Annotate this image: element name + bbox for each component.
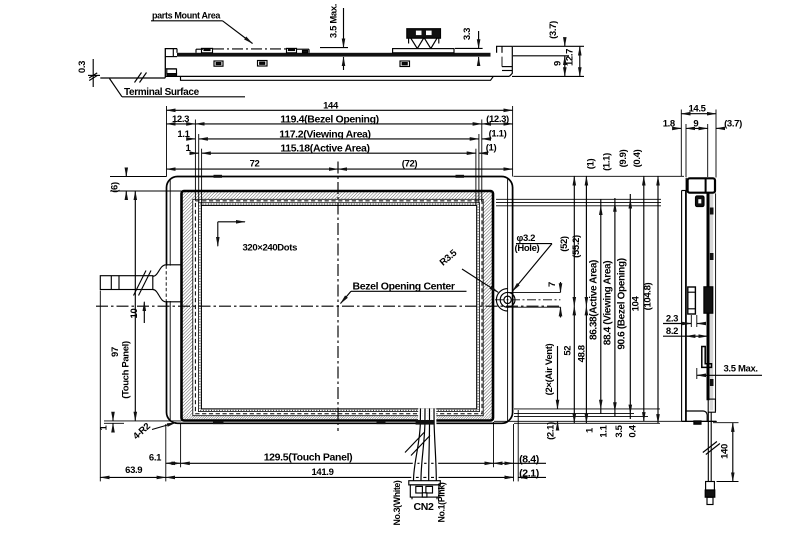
svg-text:(3.7): (3.7): [724, 118, 742, 129]
svg-text:No.3(White): No.3(White): [392, 480, 402, 525]
svg-text:(52): (52): [559, 236, 570, 252]
svg-text:(9.9): (9.9): [618, 149, 629, 167]
svg-text:9: 9: [553, 61, 564, 66]
svg-text:(1.1): (1.1): [602, 153, 613, 171]
svg-text:Bezel Opening Center: Bezel Opening Center: [353, 281, 455, 293]
svg-text:117.2(Viewing Area): 117.2(Viewing Area): [279, 128, 370, 140]
svg-text:(104.8): (104.8): [643, 282, 654, 310]
svg-text:140: 140: [720, 444, 731, 459]
svg-text:3.5 Max.: 3.5 Max.: [329, 4, 340, 38]
svg-text:(1): (1): [486, 143, 497, 154]
svg-text:48.8: 48.8: [577, 345, 588, 362]
svg-text:(55.2): (55.2): [571, 235, 582, 258]
svg-text:52: 52: [563, 346, 574, 356]
svg-text:1.8: 1.8: [663, 118, 675, 129]
svg-text:(2.1): (2.1): [546, 422, 557, 440]
svg-text:(Hole): (Hole): [515, 243, 540, 254]
svg-text:86.38(Active Area): 86.38(Active Area): [588, 260, 599, 340]
svg-text:129.5(Touch Panel): 129.5(Touch Panel): [264, 452, 353, 464]
svg-text:72: 72: [250, 159, 260, 170]
svg-text:(2×(Air Vent): (2×(Air Vent): [544, 343, 555, 395]
svg-text:1.1: 1.1: [177, 129, 190, 140]
svg-text:No.1(Pink): No.1(Pink): [437, 482, 447, 522]
svg-text:(6): (6): [110, 182, 121, 193]
svg-text:0.3: 0.3: [77, 61, 88, 73]
svg-text:2.3: 2.3: [666, 314, 678, 325]
svg-text:97: 97: [110, 347, 121, 357]
svg-text:(0.4): (0.4): [632, 149, 643, 167]
svg-text:141.9: 141.9: [311, 467, 333, 478]
svg-text:63.9: 63.9: [125, 465, 142, 476]
svg-text:3.3: 3.3: [462, 28, 473, 40]
svg-text:Terminal Surface: Terminal Surface: [124, 87, 200, 98]
svg-text:3.5: 3.5: [614, 424, 625, 437]
svg-text:(2.1): (2.1): [519, 467, 539, 479]
svg-text:(3.7): (3.7): [548, 21, 559, 39]
svg-text:7: 7: [547, 282, 558, 287]
svg-text:(1.1): (1.1): [489, 128, 507, 139]
svg-text:0.4: 0.4: [628, 424, 639, 437]
svg-text:144: 144: [323, 100, 339, 111]
svg-text:9: 9: [693, 118, 698, 129]
svg-text:6.1: 6.1: [149, 452, 162, 463]
svg-text:(1): (1): [586, 159, 597, 170]
svg-text:12.3: 12.3: [172, 114, 189, 125]
svg-text:CN2: CN2: [414, 501, 434, 513]
svg-text:90.6 (Bezel Opening): 90.6 (Bezel Opening): [617, 258, 628, 349]
svg-text:8.2: 8.2: [666, 326, 678, 337]
svg-text:12.7: 12.7: [565, 49, 576, 66]
svg-text:119.4(Bezel Opening): 119.4(Bezel Opening): [280, 113, 379, 125]
svg-text:14.5: 14.5: [688, 104, 706, 115]
svg-text:(Touch Panel): (Touch Panel): [121, 341, 132, 399]
svg-text:115.18(Active Area): 115.18(Active Area): [280, 143, 369, 155]
svg-text:(12.3): (12.3): [486, 114, 509, 125]
svg-text:320×240Dots: 320×240Dots: [243, 243, 298, 254]
svg-text:104: 104: [631, 296, 642, 312]
svg-text:10: 10: [129, 309, 140, 319]
svg-text:(72): (72): [402, 159, 418, 170]
svg-text:88.4 (Viewing Area): 88.4 (Viewing Area): [602, 261, 613, 346]
svg-text:(8.4): (8.4): [519, 453, 539, 465]
svg-text:1.1: 1.1: [599, 424, 610, 437]
svg-text:3.5 Max.: 3.5 Max.: [724, 363, 758, 374]
svg-text:parts Mount Area: parts Mount Area: [152, 11, 221, 21]
